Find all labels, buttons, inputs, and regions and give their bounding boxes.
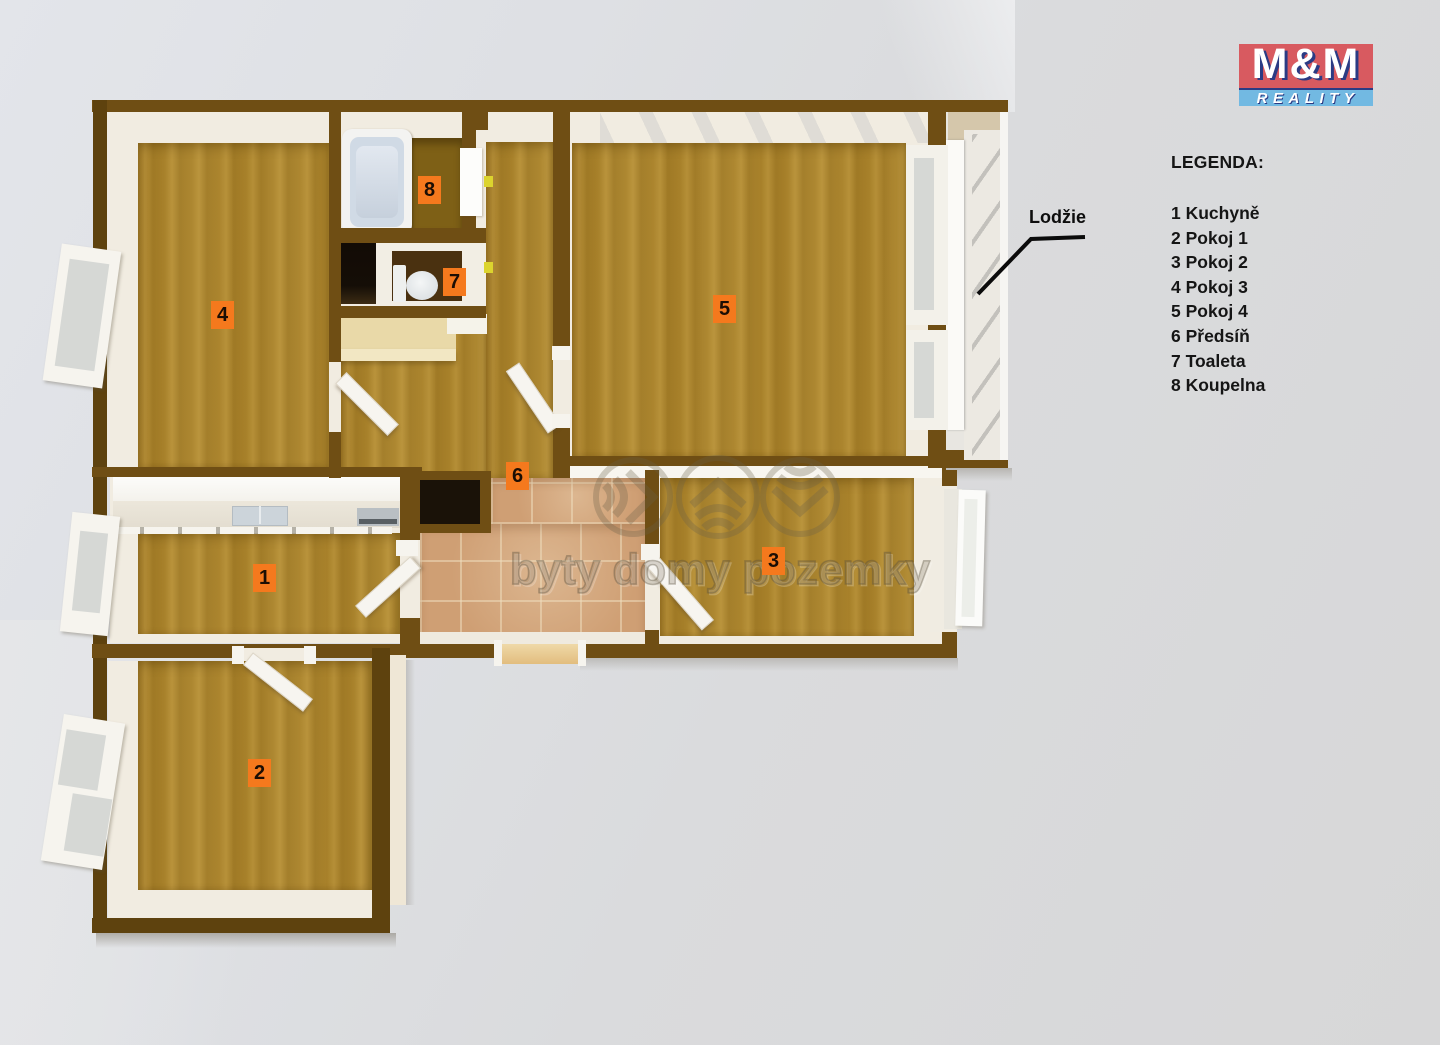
svg-text:byty domy pozemky: byty domy pozemky: [510, 545, 931, 594]
